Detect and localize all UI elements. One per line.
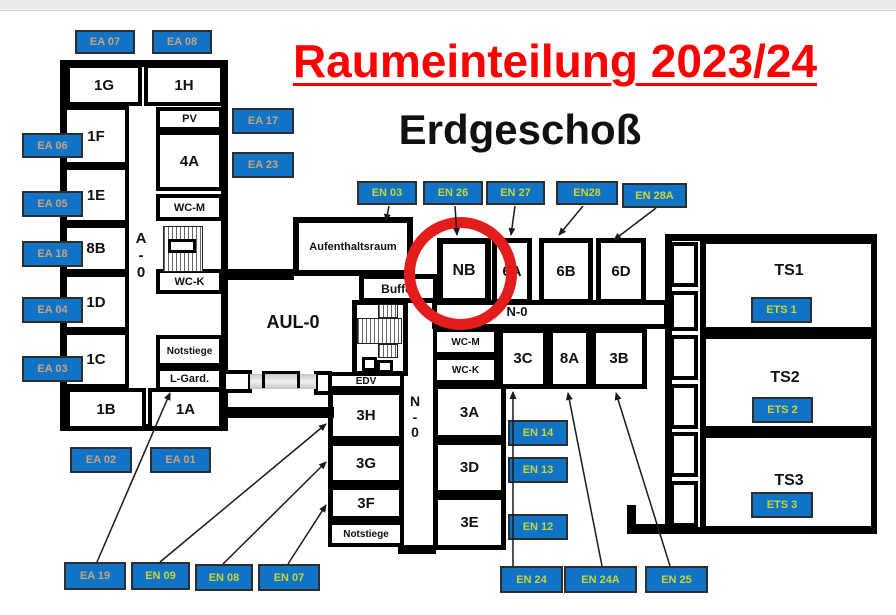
room-3e-label: 3E — [460, 514, 478, 531]
room-wck-n-label: WC-K — [452, 365, 479, 376]
room-3g: 3G — [328, 441, 404, 485]
room-1d-label: 1D — [86, 294, 105, 311]
room-3h-label: 3H — [356, 407, 375, 424]
tag-ea-08: EA 08 — [152, 30, 212, 54]
room-pv-label: PV — [182, 113, 197, 125]
tag-en-26: EN 26 — [423, 181, 483, 205]
room-ts3-label: TS3 — [758, 472, 820, 490]
passage-box-east — [314, 371, 332, 395]
room-1h: 1H — [144, 64, 224, 106]
corridor-a0-vertical-label: A - 0 — [128, 231, 154, 281]
room-6b-label: 6B — [556, 263, 575, 280]
room-lgard-label: L-Gard. — [170, 373, 209, 385]
tag-en-09: EN 09 — [131, 562, 190, 590]
room-edv-label: EDV — [356, 376, 377, 387]
room-3e: 3E — [433, 495, 506, 550]
tag-ets-3: ETS 3 — [751, 492, 813, 518]
stair-mid-hatch-top — [378, 304, 398, 318]
tag-en-28a: EN 28A — [622, 183, 687, 208]
room-1b: 1B — [66, 388, 146, 430]
wall-n0-south — [398, 545, 436, 554]
room-3b: 3B — [591, 328, 647, 389]
passage-box-west — [222, 370, 252, 393]
passage-door-bracket — [262, 371, 300, 388]
tag-en28: EN28 — [556, 181, 618, 205]
stair-mid-hatch-main — [357, 318, 402, 344]
room-pv: PV — [156, 107, 223, 131]
tag-en-24a: EN 24A — [564, 566, 637, 593]
room-ts1-label: TS1 — [758, 262, 820, 280]
stair-mid-step-east — [377, 360, 393, 373]
room-wck-a-label: WC-K — [175, 276, 205, 288]
room-1a-label: 1A — [176, 401, 195, 418]
room-notstiege-a: Notstiege — [156, 335, 223, 367]
tag-ea-05: EA 05 — [22, 191, 83, 217]
corridor-aul0-label: AUL-0 — [258, 312, 328, 332]
room-8a: 8A — [548, 328, 591, 389]
room-aufenthaltsraum-label: Aufenthaltsraum — [309, 241, 396, 253]
room-4a: 4A — [156, 131, 223, 191]
room-1c-label: 1C — [86, 351, 105, 368]
room-wck-a: WC-K — [156, 269, 223, 294]
room-6d: 6D — [596, 238, 646, 304]
room-3c-label: 3C — [513, 350, 532, 367]
wall-aula-south — [222, 407, 334, 418]
tag-en-13: EN 13 — [508, 457, 568, 483]
room-1h-label: 1H — [174, 77, 193, 94]
room-notstiege-n-label: Notstiege — [343, 529, 389, 540]
room-wcm-a-label: WC-M — [174, 202, 205, 214]
wall-aula-north — [224, 269, 294, 280]
ts-link-box-5 — [670, 432, 698, 477]
room-notstiege-a-label: Notstiege — [167, 346, 213, 357]
room-wcm-a: WC-M — [156, 194, 223, 221]
room-3f: 3F — [328, 485, 404, 521]
room-1g-label: 1G — [94, 77, 114, 94]
corridor-n0-horizontal-label: N-0 — [492, 305, 542, 320]
room-3a-label: 3A — [460, 404, 479, 421]
corridor-n0-vertical-label: N - 0 — [402, 394, 428, 441]
tag-ets-2: ETS 2 — [752, 397, 813, 423]
room-lgard: L-Gard. — [156, 367, 223, 391]
room-wcm-n: WC-M — [433, 328, 498, 356]
tag-ets-1: ETS 1 — [751, 297, 812, 323]
room-3d-label: 3D — [460, 459, 479, 476]
room-notstiege-n: Notstiege — [328, 521, 404, 547]
ts-link-box-4 — [670, 384, 698, 429]
room-8b-label: 8B — [86, 240, 105, 257]
room-wcm-n-label: WC-M — [451, 337, 479, 348]
tag-en-08: EN 08 — [195, 564, 253, 591]
tag-en-03: EN 03 — [357, 181, 417, 205]
room-8a-label: 8A — [560, 350, 579, 367]
tag-ea-03: EA 03 — [22, 356, 83, 382]
stair-a-landing — [168, 239, 196, 253]
tag-ea-17: EA 17 — [232, 108, 294, 134]
tag-en-12: EN 12 — [508, 514, 568, 540]
tag-ea-19: EA 19 — [64, 562, 126, 590]
stair-mid-step-west — [362, 357, 377, 371]
room-ts2-label: TS2 — [754, 369, 816, 387]
room-3a: 3A — [433, 384, 506, 440]
tag-ea-02: EA 02 — [70, 447, 132, 473]
tag-en-24: EN 24 — [500, 566, 563, 593]
stair-mid-hatch-bottom — [378, 344, 398, 358]
tag-en-07: EN 07 — [258, 564, 320, 591]
tag-ea-04: EA 04 — [22, 297, 83, 323]
room-3h: 3H — [328, 390, 404, 441]
room-1a: 1A — [148, 388, 223, 430]
tag-ea-23: EA 23 — [232, 152, 294, 178]
ts-link-box-1 — [670, 242, 698, 287]
room-3f-label: 3F — [357, 495, 375, 512]
room-1e-label: 1E — [87, 187, 105, 204]
tag-ea-06: EA 06 — [22, 133, 83, 158]
room-1f-label: 1F — [87, 128, 105, 145]
room-3b-label: 3B — [609, 350, 628, 367]
tag-ea-07: EA 07 — [75, 30, 135, 54]
wall-foot-horizontal — [627, 524, 669, 534]
room-3g-label: 3G — [356, 455, 376, 472]
room-wck-n: WC-K — [433, 356, 498, 384]
ts-link-box-2 — [670, 291, 698, 331]
room-1b-label: 1B — [96, 401, 115, 418]
room-4a-label: 4A — [180, 153, 199, 170]
tag-en-14: EN 14 — [508, 420, 568, 446]
room-6b: 6B — [539, 238, 593, 304]
tag-en-27: EN 27 — [486, 181, 545, 205]
floor-plan: 1G1H1F1E8B1D1C1B1APV4AWC-MWC-KNotstiegeL… — [0, 0, 896, 615]
tag-en-25: EN 25 — [645, 566, 708, 593]
room-6d-label: 6D — [611, 263, 630, 280]
room-3d: 3D — [433, 440, 506, 495]
room-aufenthaltsraum: Aufenthaltsraum — [293, 217, 413, 276]
room-3c: 3C — [498, 328, 548, 389]
ts-link-box-6 — [670, 481, 698, 527]
room-1g: 1G — [66, 64, 142, 106]
tag-ea-18: EA 18 — [22, 241, 83, 267]
tag-ea-01: EA 01 — [150, 447, 211, 473]
ts-link-box-3 — [670, 335, 698, 380]
